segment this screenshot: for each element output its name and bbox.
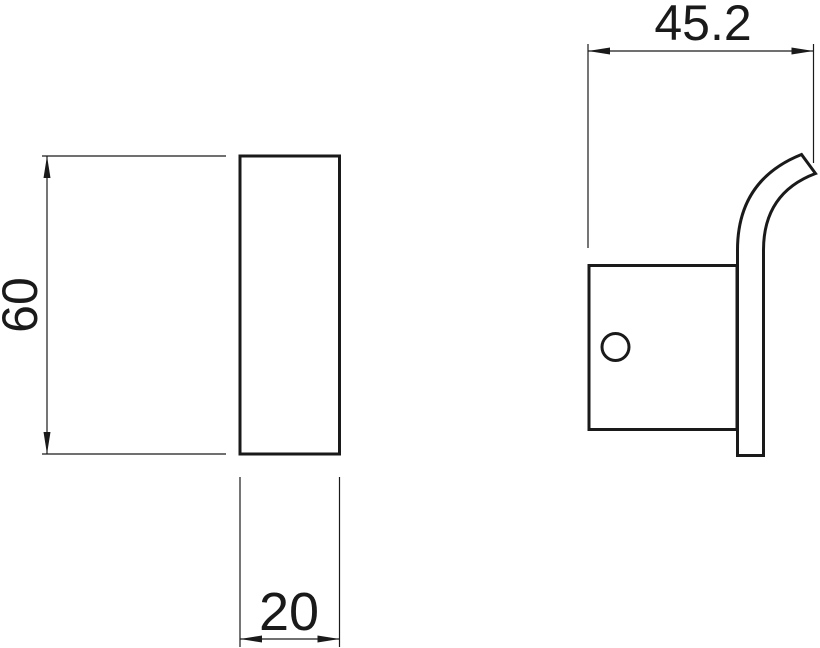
- side-view-hook-arm: [738, 155, 816, 456]
- side-view-plate-outline: [589, 266, 737, 430]
- side-view-screw-hole: [602, 334, 629, 361]
- two-view-hook-drawing: 60 20 45.2: [0, 0, 820, 648]
- height-dim-arrow-up-icon: [44, 156, 51, 178]
- height-dim-arrow-down-icon: [44, 432, 51, 454]
- technical-drawing-canvas: 60 20 45.2: [0, 0, 820, 648]
- height-dim-value: 60: [0, 277, 48, 333]
- depth-dim-value: 45.2: [654, 0, 751, 51]
- width-dim-value: 20: [259, 582, 319, 642]
- depth-dim-arrow-left-icon: [588, 48, 610, 55]
- width-dim-arrow-right-icon: [318, 636, 340, 643]
- front-view-plate-outline: [240, 156, 340, 454]
- depth-dim-arrow-right-icon: [792, 48, 814, 55]
